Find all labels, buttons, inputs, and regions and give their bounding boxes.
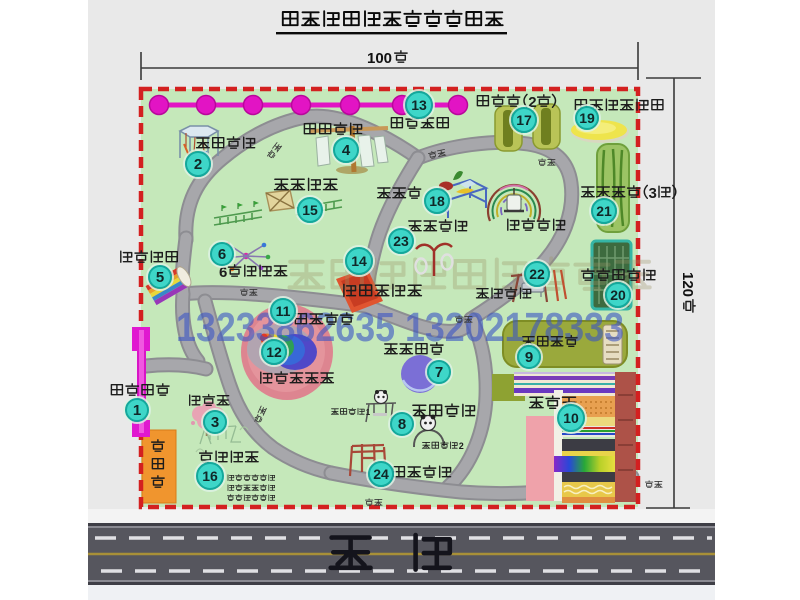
svg-text:15: 15 bbox=[302, 202, 318, 218]
svg-text:2: 2 bbox=[459, 441, 464, 451]
svg-text:120: 120 bbox=[679, 272, 696, 297]
svg-text:18: 18 bbox=[429, 193, 445, 209]
svg-text:4: 4 bbox=[342, 142, 351, 159]
svg-text:7: 7 bbox=[435, 364, 443, 381]
svg-text:16: 16 bbox=[202, 468, 218, 484]
svg-text:1: 1 bbox=[133, 402, 141, 419]
svg-text:10: 10 bbox=[563, 410, 579, 426]
svg-text:100: 100 bbox=[367, 50, 392, 67]
svg-text:5: 5 bbox=[156, 269, 164, 286]
svg-text:21: 21 bbox=[596, 203, 612, 219]
svg-text:23: 23 bbox=[393, 233, 409, 249]
svg-text:20: 20 bbox=[610, 287, 626, 303]
svg-text:1: 1 bbox=[366, 408, 371, 417]
svg-text:9: 9 bbox=[525, 349, 533, 366]
svg-text:3: 3 bbox=[211, 414, 219, 431]
svg-text:12: 12 bbox=[266, 344, 282, 360]
svg-text:14: 14 bbox=[351, 253, 367, 269]
svg-text:3: 3 bbox=[649, 185, 657, 202]
svg-text:22: 22 bbox=[529, 266, 545, 282]
svg-text:8: 8 bbox=[398, 416, 406, 433]
svg-text:6: 6 bbox=[218, 246, 226, 263]
svg-text:24: 24 bbox=[373, 466, 389, 482]
svg-text:17: 17 bbox=[516, 112, 532, 128]
svg-text:13: 13 bbox=[411, 97, 427, 113]
svg-text:2: 2 bbox=[194, 156, 202, 173]
svg-text:19: 19 bbox=[579, 110, 595, 126]
svg-text:11: 11 bbox=[276, 303, 291, 319]
